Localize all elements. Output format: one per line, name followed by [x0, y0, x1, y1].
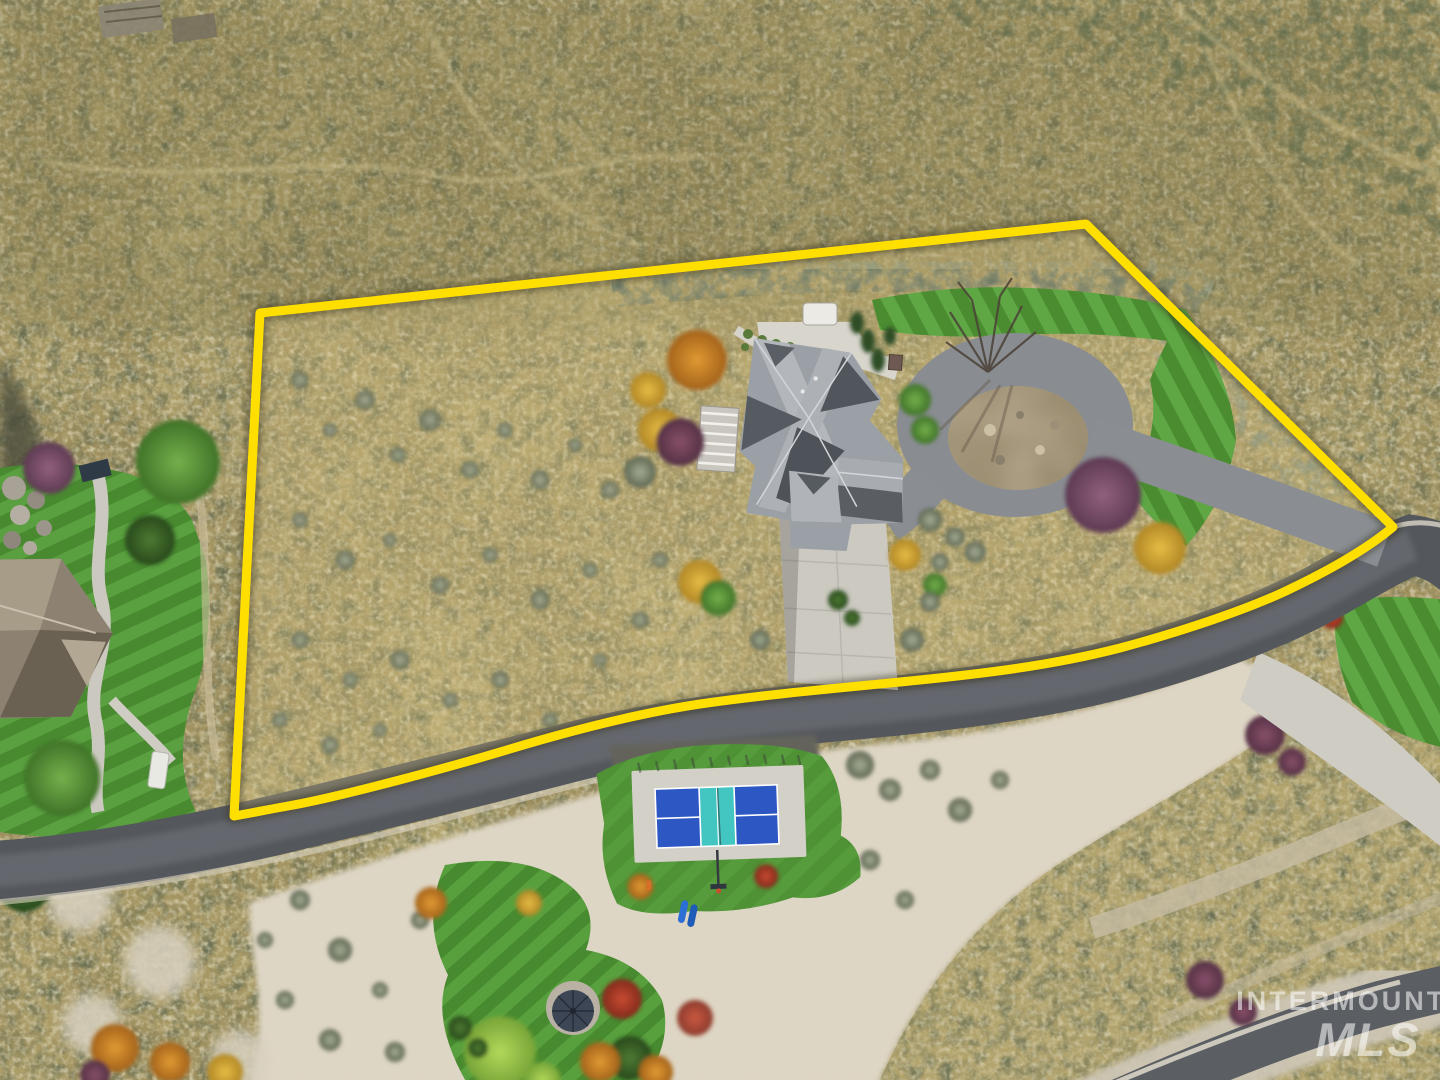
watermark-line2: MLS — [1315, 1013, 1420, 1066]
hot-tub — [803, 303, 837, 325]
person-figure — [646, 880, 651, 890]
patio-umbrella — [552, 990, 594, 1032]
watermark-line1: INTERMOUNTAIN — [1236, 986, 1440, 1016]
chimney — [888, 354, 902, 370]
aerial-photo: INTERMOUNTAIN MLS — [0, 0, 1440, 1080]
